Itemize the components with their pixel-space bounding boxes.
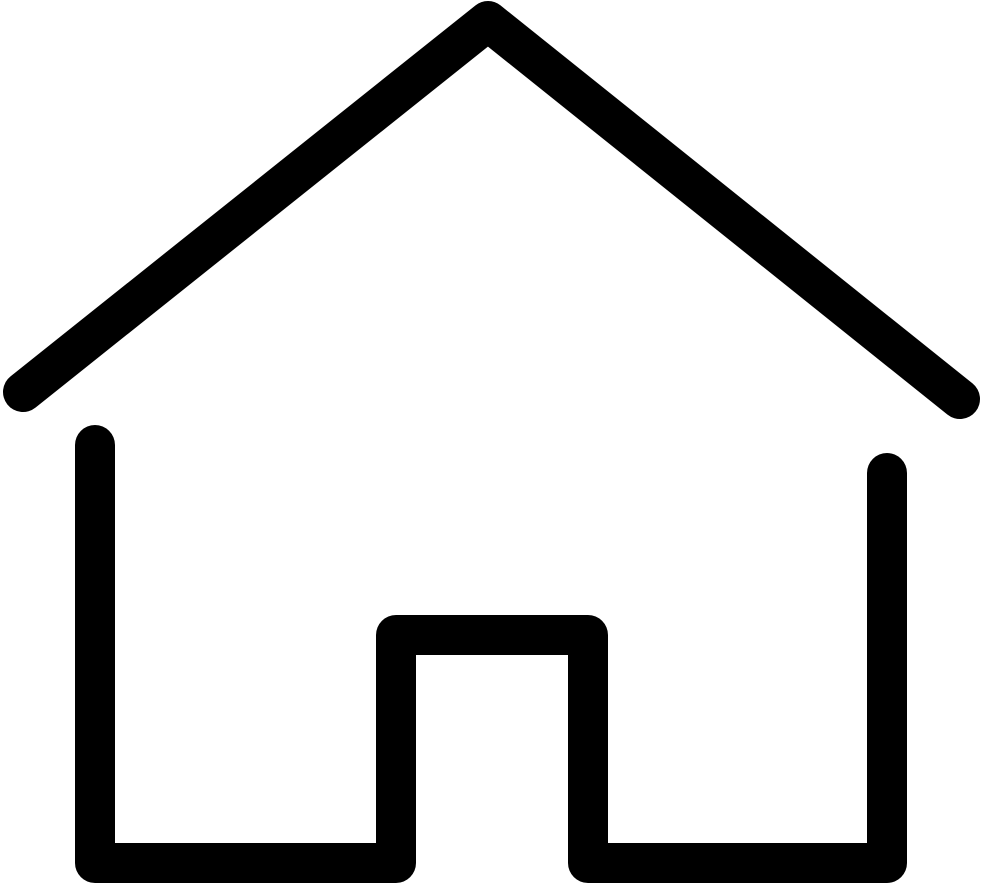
home-body-stroke [95, 445, 887, 863]
home-icon [0, 0, 982, 886]
icon-canvas [0, 0, 982, 886]
home-roof-stroke [23, 21, 960, 399]
